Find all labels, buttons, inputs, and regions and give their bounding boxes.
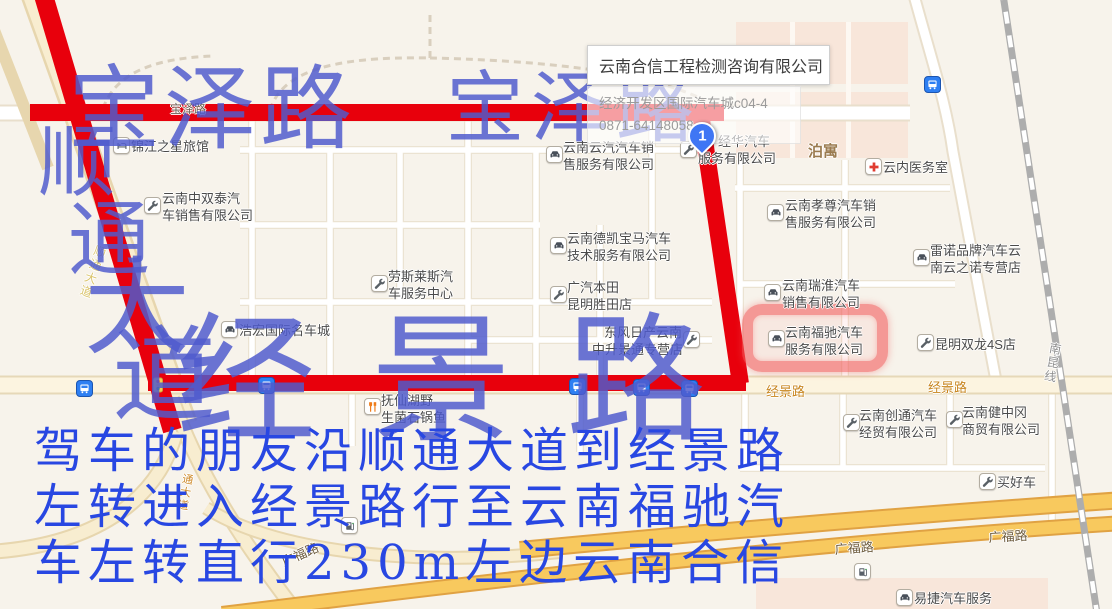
poi-label: 劳斯莱斯汽车服务中心 xyxy=(388,268,453,302)
wrench-icon[interactable] xyxy=(917,334,934,351)
poi-label: 云南中双泰汽车销售有限公司 xyxy=(162,190,253,224)
bus-stop-icon[interactable] xyxy=(924,76,941,93)
wrench-icon[interactable] xyxy=(843,414,860,431)
road-name-label: 经景路 xyxy=(928,377,967,396)
road-name-label: 广福路 xyxy=(988,525,1028,546)
car-icon[interactable] xyxy=(913,249,930,266)
popup-address: 经济开发区国际汽车城c04-4 xyxy=(599,93,800,115)
poi-label: 云南创通汽车经贸有限公司 xyxy=(859,407,937,441)
road-name-label: 泊寓 xyxy=(808,140,838,161)
poi-label: 云南德凯宝马汽车技术服务有限公司 xyxy=(567,230,671,264)
popup-title-card[interactable]: 云南合信工程检测咨询有限公司 xyxy=(587,45,830,85)
car-icon[interactable] xyxy=(896,589,913,606)
poi-label: 云内医务室 xyxy=(883,159,948,176)
poi-label: 云南健中冈商贸有限公司 xyxy=(962,404,1040,438)
wrench-icon[interactable] xyxy=(371,275,388,292)
road-annotation-char: 顺 xyxy=(38,124,116,202)
poi-label: 雷诺品牌汽车云南云之诺专营店 xyxy=(930,242,1021,276)
car-icon[interactable] xyxy=(764,284,781,301)
car-icon[interactable] xyxy=(768,330,785,347)
cross-icon[interactable] xyxy=(865,158,882,175)
poi-label: 云南福驰汽车服务有限公司 xyxy=(785,324,863,358)
bus-stop-icon[interactable] xyxy=(76,380,93,397)
popup-title: 云南合信工程检测咨询有限公司 xyxy=(599,53,823,77)
poi-label: 昆明双龙4S店 xyxy=(935,336,1016,353)
wrench-icon[interactable] xyxy=(979,473,996,490)
marker-label: 1 xyxy=(698,128,706,145)
poi-label: 云南瑞淮汽车销售有限公司 xyxy=(782,277,860,311)
road-name-label: 广福路 xyxy=(834,536,874,558)
gas-station-icon[interactable] xyxy=(854,563,871,580)
directions-line-2: 左转进入经景路行至云南福驰汽 xyxy=(34,483,790,531)
wrench-icon[interactable] xyxy=(946,411,963,428)
car-icon[interactable] xyxy=(767,204,784,221)
road-annotation-char: 道 xyxy=(112,324,216,428)
directions-line-1: 驾车的朋友沿顺通大道到经景路 xyxy=(34,427,790,475)
directions-line-3: 车左转直行230m左边云南合信 xyxy=(34,539,789,587)
car-icon[interactable] xyxy=(550,237,567,254)
poi-label: 易捷汽车服务 xyxy=(914,590,992,607)
road-name-label: 经景路 xyxy=(766,381,805,400)
map-screenshot: 宝泽路经景路经景路广福路广福路广福路泊寓通大道顺通大道南昆线 锦江之星旅馆云南中… xyxy=(0,0,1112,609)
poi-label: 买好车 xyxy=(997,474,1036,491)
poi-label: 云南孝尊汽车销售服务有限公司 xyxy=(785,197,876,231)
